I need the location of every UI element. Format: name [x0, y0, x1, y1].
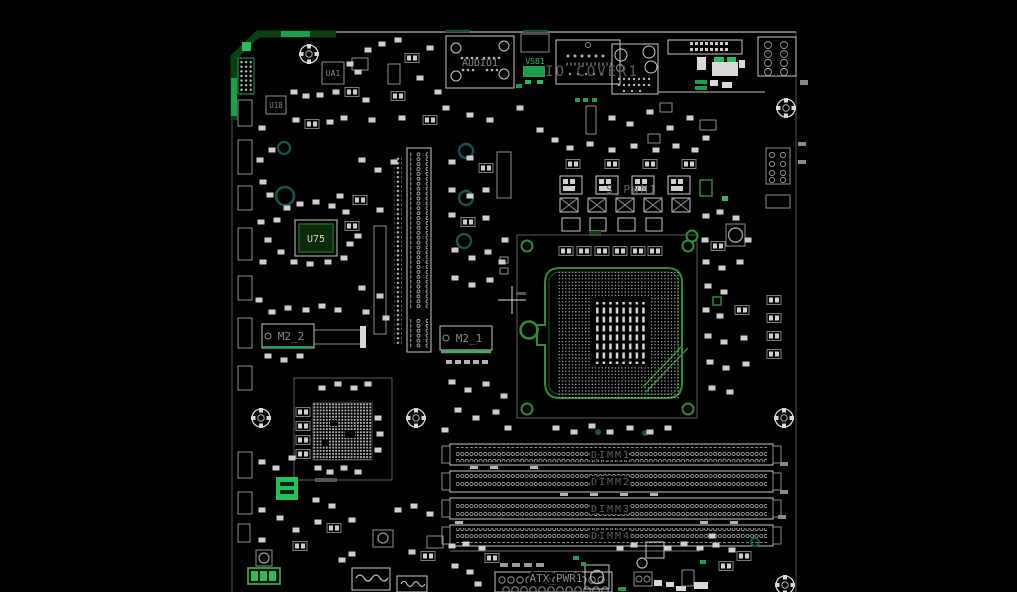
m2-slot-2-label: M2_2: [278, 330, 305, 343]
round-component: [585, 565, 609, 589]
m2-slot-1-label: M2_1: [456, 332, 483, 345]
chip-u75-label: U75: [307, 234, 325, 245]
socket-hole: [521, 322, 538, 339]
highlighted-green-component[interactable]: [276, 477, 298, 500]
origin-crosshair: [498, 257, 526, 314]
vrm-area[interactable]: S_PWM1: [560, 160, 728, 213]
dimm-slot-4-label: DIMM4: [591, 531, 631, 542]
chip-u75[interactable]: U75: [295, 220, 337, 256]
inductor: [726, 224, 745, 246]
lan-magnetics-cluster: [658, 57, 765, 92]
boardview-canvas[interactable]: AUDIO1 VSB1: [0, 0, 1017, 592]
cpu-socket[interactable]: [517, 235, 697, 418]
green-jumper[interactable]: [248, 568, 280, 584]
dimm-slot-2[interactable]: DIMM2: [442, 471, 781, 492]
dimm-slot-1[interactable]: DIMM1: [442, 444, 781, 465]
speaker-header: [373, 530, 393, 547]
m2-slot-1[interactable]: M2_1: [440, 326, 492, 364]
usb-header-bottom: [634, 572, 652, 586]
pcie-x16-slot[interactable]: [407, 148, 431, 352]
dimm-slot-3-label: DIMM3: [591, 504, 631, 515]
chipset-bga[interactable]: [294, 378, 392, 482]
dimm-slot-4[interactable]: DIMM4: [442, 525, 781, 546]
io-cover-label: IO COVER1: [545, 64, 639, 80]
chip-ua1[interactable]: UA1: [322, 62, 344, 84]
chip-u18-label: U18: [269, 101, 283, 110]
lan-connector[interactable]: [668, 40, 742, 54]
chip-ua1-label: UA1: [326, 69, 341, 78]
chip-u18[interactable]: U18: [266, 96, 286, 114]
atx-power-connector[interactable]: ATX_PWR1: [495, 563, 612, 592]
m2-slot-2[interactable]: M2_2: [262, 324, 366, 348]
buzzer: [256, 550, 272, 566]
atx-power-label: ATX_PWR1: [530, 572, 583, 585]
dimm-slot-1-label: DIMM1: [591, 450, 631, 461]
socket-top-capacitor-rows: [559, 218, 662, 256]
socket-cavity-caps: [596, 302, 648, 364]
audio-connector[interactable]: AUDIO1: [446, 36, 514, 88]
atx12v-connector[interactable]: [758, 37, 796, 76]
vsb-connector-label: VSB1: [525, 57, 544, 66]
pcb-board: AUDIO1 VSB1: [0, 0, 1017, 592]
io-green-bits: [516, 84, 597, 102]
dimm-slot-3[interactable]: DIMM3: [442, 498, 781, 519]
crystal-2: [397, 576, 427, 592]
vrm-pwm-label: S_PWM1: [606, 183, 658, 196]
rear-io-area: AUDIO1 VSB1: [446, 34, 765, 102]
audio-connector-label: AUDIO1: [462, 58, 498, 69]
left-edge-headers[interactable]: [238, 100, 252, 542]
dimm-slot-2-label: DIMM2: [591, 477, 631, 488]
crystal-1: [352, 568, 390, 590]
